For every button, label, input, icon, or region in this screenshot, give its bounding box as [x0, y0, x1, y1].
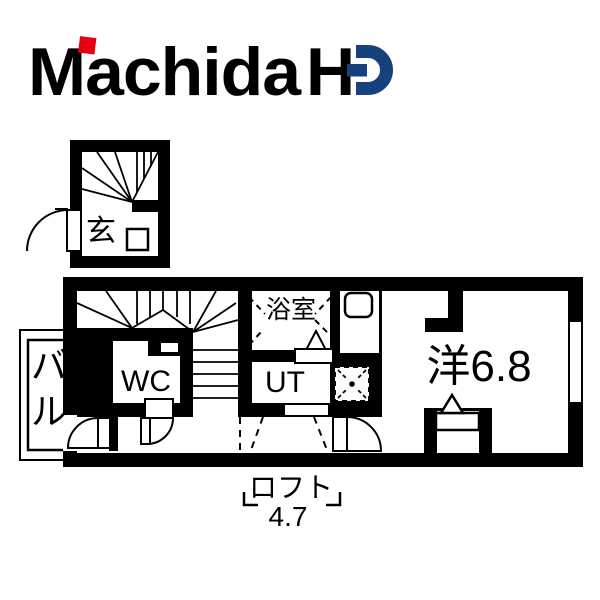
kitchen-sink	[345, 293, 372, 317]
utility-doorway	[284, 404, 329, 416]
bath-label: 浴室	[266, 296, 316, 324]
wc-label: WC	[121, 365, 171, 398]
wc-door-leaf	[141, 418, 150, 444]
wall	[132, 200, 158, 212]
main-floor-plan: WC 浴室	[31, 277, 583, 467]
door-swing-arc	[27, 210, 68, 251]
window	[569, 321, 582, 403]
pan-drain	[349, 381, 355, 387]
wc-floor	[113, 341, 148, 356]
wall	[330, 291, 340, 353]
balcony-label-char1: バ	[31, 345, 67, 386]
room-label: 洋6.8	[426, 342, 531, 391]
wc-shelf	[161, 343, 178, 352]
wall	[70, 328, 193, 341]
logo-d-bar	[347, 64, 367, 77]
floorplan-canvas: Machida H	[0, 0, 600, 600]
washing-machine-pan	[335, 367, 369, 401]
wc-door-opening	[145, 399, 173, 418]
loft-caption: ロフト 4.7	[244, 472, 340, 532]
logo-word-machida: Machida	[28, 34, 302, 110]
balcony-label-char2: ル	[31, 391, 67, 432]
logo: Machida H	[28, 34, 387, 110]
logo-red-square-icon	[78, 36, 96, 54]
wall	[425, 318, 463, 332]
wall	[379, 291, 382, 353]
hall-door-leaf	[333, 417, 347, 451]
logo-letter-h: H	[306, 34, 354, 110]
balcony-door-leaf	[98, 418, 110, 448]
loft-label: ロフト	[249, 472, 333, 503]
entrance-door	[27, 209, 82, 251]
bath-doorway	[295, 349, 333, 363]
door-leaf	[67, 210, 81, 251]
utility-label: UT	[265, 366, 305, 399]
upper-floor-plan: 玄	[27, 140, 170, 268]
step-box-top	[436, 413, 479, 430]
loft-size: 4.7	[269, 501, 308, 532]
shoe-cabinet	[127, 229, 148, 250]
floorplan-page: Machida H	[0, 0, 600, 600]
entrance-label: 玄	[86, 215, 116, 248]
